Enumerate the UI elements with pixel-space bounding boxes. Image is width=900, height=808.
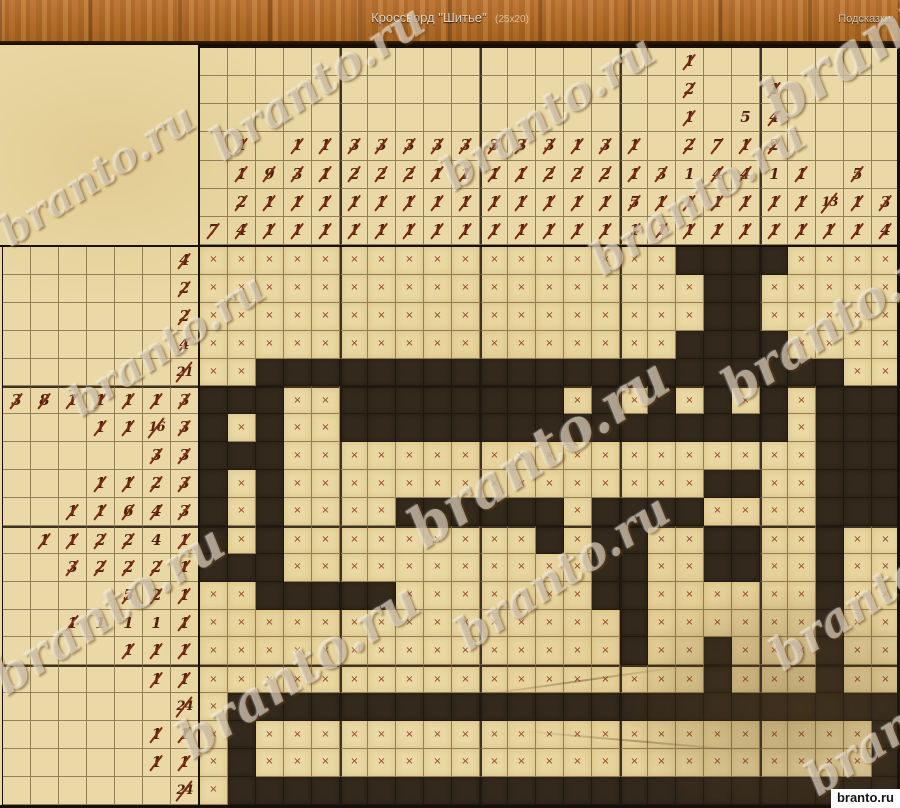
col-clue-cell[interactable]: 1: [844, 189, 872, 217]
grid-cell-filled[interactable]: [648, 498, 676, 526]
grid-cell-empty[interactable]: ×: [676, 610, 704, 638]
grid-cell-empty[interactable]: ×: [396, 749, 424, 777]
grid-cell-empty[interactable]: ×: [312, 610, 340, 638]
row-clue-cell[interactable]: [3, 665, 31, 693]
col-clue-cell[interactable]: [788, 104, 816, 132]
grid-cell-filled[interactable]: [592, 693, 620, 721]
grid-cell-filled[interactable]: [592, 414, 620, 442]
row-clue-cell[interactable]: [115, 275, 143, 303]
grid-cell-empty[interactable]: ×: [284, 610, 312, 638]
grid-cell-filled[interactable]: [816, 526, 844, 554]
grid-cell-filled[interactable]: [732, 303, 760, 331]
col-clue-cell[interactable]: 1: [424, 189, 452, 217]
col-clue-cell[interactable]: 1: [620, 161, 648, 189]
grid-cell-filled[interactable]: [312, 777, 340, 805]
grid-cell-empty[interactable]: ×: [200, 665, 228, 693]
grid-cell-filled[interactable]: [312, 582, 340, 610]
row-clue-cell[interactable]: 1: [59, 386, 87, 414]
grid-cell-empty[interactable]: ×: [480, 247, 508, 275]
grid-cell-filled[interactable]: [312, 693, 340, 721]
grid-cell-empty[interactable]: ×: [564, 637, 592, 665]
grid-cell-empty[interactable]: ×: [872, 637, 900, 665]
col-clue-cell[interactable]: 1: [228, 132, 256, 160]
grid-cell-empty[interactable]: ×: [256, 749, 284, 777]
grid-cell-empty[interactable]: ×: [312, 554, 340, 582]
col-clue-cell[interactable]: 2: [340, 161, 368, 189]
grid-cell-empty[interactable]: ×: [508, 749, 536, 777]
grid-cell-filled[interactable]: [256, 777, 284, 805]
grid-cell-filled[interactable]: [816, 637, 844, 665]
grid-cell-filled[interactable]: [592, 498, 620, 526]
row-clue-cell[interactable]: [3, 582, 31, 610]
grid-cell-filled[interactable]: [704, 386, 732, 414]
row-clue-cell[interactable]: [3, 303, 31, 331]
grid-cell-empty[interactable]: ×: [228, 637, 256, 665]
col-clue-cell[interactable]: [872, 132, 900, 160]
grid-cell-empty[interactable]: ×: [760, 665, 788, 693]
grid-cell-empty[interactable]: ×: [676, 386, 704, 414]
grid-cell-filled[interactable]: [704, 247, 732, 275]
grid-cell-empty[interactable]: ×: [760, 721, 788, 749]
grid-cell-filled[interactable]: [676, 693, 704, 721]
row-clue-cell[interactable]: [59, 749, 87, 777]
grid-cell-empty[interactable]: ×: [340, 721, 368, 749]
row-clue-cell[interactable]: [31, 498, 59, 526]
row-clue-cell[interactable]: [3, 637, 31, 665]
row-clue-cell[interactable]: [59, 777, 87, 805]
grid-cell-filled[interactable]: [592, 359, 620, 387]
col-clue-cell[interactable]: [424, 104, 452, 132]
col-clue-cell[interactable]: 2: [396, 161, 424, 189]
grid-cell-empty[interactable]: ×: [200, 721, 228, 749]
grid-cell-empty[interactable]: ×: [676, 275, 704, 303]
grid-cell-filled[interactable]: [424, 693, 452, 721]
grid-cell-empty[interactable]: ×: [368, 526, 396, 554]
grid-cell-filled[interactable]: [228, 554, 256, 582]
grid-cell-filled[interactable]: [396, 414, 424, 442]
grid-cell-empty[interactable]: ×: [536, 247, 564, 275]
col-clue-cell[interactable]: 1: [760, 161, 788, 189]
grid-cell-empty[interactable]: ×: [200, 275, 228, 303]
row-clue-cell[interactable]: [59, 359, 87, 387]
grid-cell-empty[interactable]: ×: [452, 749, 480, 777]
grid-cell-empty[interactable]: ×: [312, 331, 340, 359]
col-clue-cell[interactable]: 1: [480, 189, 508, 217]
grid-cell-empty[interactable]: ×: [340, 749, 368, 777]
grid-cell-filled[interactable]: [368, 386, 396, 414]
grid-cell-filled[interactable]: [256, 442, 284, 470]
col-clue-cell[interactable]: 1: [396, 189, 424, 217]
grid-cell-empty[interactable]: ×: [452, 637, 480, 665]
col-clue-cell[interactable]: 1: [536, 217, 564, 245]
grid-cell-empty[interactable]: ×: [536, 665, 564, 693]
grid-cell-filled[interactable]: [844, 442, 872, 470]
grid-cell-empty[interactable]: ×: [368, 247, 396, 275]
grid-cell-empty[interactable]: ×: [452, 721, 480, 749]
col-clue-cell[interactable]: [480, 48, 508, 76]
grid-cell-empty[interactable]: ×: [648, 470, 676, 498]
col-clue-cell[interactable]: [816, 161, 844, 189]
grid-cell-empty[interactable]: ×: [872, 582, 900, 610]
grid-cell-filled[interactable]: [732, 554, 760, 582]
grid-cell-filled[interactable]: [788, 359, 816, 387]
col-clue-cell[interactable]: [312, 48, 340, 76]
col-clue-cell[interactable]: [452, 104, 480, 132]
grid-cell-empty[interactable]: ×: [676, 749, 704, 777]
grid-cell-filled[interactable]: [872, 414, 900, 442]
col-clue-cell[interactable]: [200, 48, 228, 76]
grid-cell-filled[interactable]: [396, 498, 424, 526]
grid-cell-empty[interactable]: ×: [340, 610, 368, 638]
grid-cell-filled[interactable]: [368, 693, 396, 721]
row-clue-cell[interactable]: [115, 665, 143, 693]
col-clue-cell[interactable]: 1: [396, 217, 424, 245]
grid-cell-empty[interactable]: ×: [228, 610, 256, 638]
grid-cell-empty[interactable]: ×: [564, 582, 592, 610]
row-clue-cell[interactable]: [3, 247, 31, 275]
grid-cell-filled[interactable]: [340, 693, 368, 721]
grid-cell-empty[interactable]: ×: [844, 749, 872, 777]
grid-cell-empty[interactable]: ×: [368, 303, 396, 331]
col-clue-cell[interactable]: 1: [452, 189, 480, 217]
col-clue-cell[interactable]: 3: [480, 132, 508, 160]
row-clue-cell[interactable]: [3, 470, 31, 498]
grid-cell-empty[interactable]: ×: [424, 665, 452, 693]
grid-cell-empty[interactable]: ×: [592, 442, 620, 470]
grid-cell-empty[interactable]: ×: [424, 275, 452, 303]
col-clue-cell[interactable]: [452, 76, 480, 104]
grid-cell-empty[interactable]: ×: [256, 275, 284, 303]
grid-cell-empty[interactable]: ×: [788, 247, 816, 275]
grid-cell-filled[interactable]: [732, 693, 760, 721]
grid-cell-empty[interactable]: ×: [760, 554, 788, 582]
grid-cell-empty[interactable]: ×: [228, 247, 256, 275]
grid-cell-empty[interactable]: ×: [368, 637, 396, 665]
grid-cell-filled[interactable]: [676, 359, 704, 387]
grid-cell-empty[interactable]: ×: [648, 610, 676, 638]
grid-cell-empty[interactable]: ×: [396, 470, 424, 498]
grid-cell-filled[interactable]: [844, 498, 872, 526]
grid-cell-empty[interactable]: ×: [788, 470, 816, 498]
col-clue-cell[interactable]: [816, 48, 844, 76]
grid-cell-empty[interactable]: ×: [844, 359, 872, 387]
grid-cell-filled[interactable]: [704, 303, 732, 331]
grid-cell-filled[interactable]: [368, 777, 396, 805]
grid-cell-empty[interactable]: ×: [760, 442, 788, 470]
grid-cell-empty[interactable]: ×: [480, 637, 508, 665]
grid-cell-empty[interactable]: ×: [312, 721, 340, 749]
col-clue-cell[interactable]: 3: [508, 132, 536, 160]
row-clue-cell[interactable]: [59, 275, 87, 303]
col-clue-cell[interactable]: [312, 104, 340, 132]
grid-cell-filled[interactable]: [452, 414, 480, 442]
grid-cell-filled[interactable]: [648, 359, 676, 387]
row-clue-cell[interactable]: 16: [143, 414, 171, 442]
row-clue-cell[interactable]: 3: [171, 414, 199, 442]
grid-cell-filled[interactable]: [704, 554, 732, 582]
grid-cell-empty[interactable]: ×: [200, 331, 228, 359]
col-clue-cell[interactable]: 2: [676, 132, 704, 160]
col-clue-cell[interactable]: [648, 48, 676, 76]
grid-cell-filled[interactable]: [816, 414, 844, 442]
col-clue-cell[interactable]: 2: [228, 189, 256, 217]
grid-cell-empty[interactable]: ×: [564, 331, 592, 359]
row-clue-cell[interactable]: [59, 331, 87, 359]
grid-cell-empty[interactable]: ×: [564, 386, 592, 414]
grid-cell-filled[interactable]: [844, 414, 872, 442]
grid-cell-empty[interactable]: ×: [424, 554, 452, 582]
col-clue-cell[interactable]: 1: [312, 189, 340, 217]
row-clue-cell[interactable]: [143, 303, 171, 331]
grid-cell-filled[interactable]: [732, 275, 760, 303]
grid-cell-empty[interactable]: ×: [844, 721, 872, 749]
grid-cell-filled[interactable]: [396, 386, 424, 414]
grid-cell-empty[interactable]: ×: [396, 247, 424, 275]
grid-cell-empty[interactable]: ×: [340, 498, 368, 526]
grid-cell-filled[interactable]: [480, 359, 508, 387]
col-clue-cell[interactable]: [648, 132, 676, 160]
grid-cell-empty[interactable]: ×: [564, 470, 592, 498]
row-clue-cell[interactable]: 2: [115, 554, 143, 582]
col-clue-cell[interactable]: 1: [648, 189, 676, 217]
grid-cell-filled[interactable]: [816, 582, 844, 610]
grid-cell-empty[interactable]: ×: [704, 582, 732, 610]
row-clue-cell[interactable]: [31, 442, 59, 470]
grid-cell-filled[interactable]: [284, 582, 312, 610]
row-clue-cell[interactable]: 3: [3, 386, 31, 414]
row-clue-cell[interactable]: 4: [171, 331, 199, 359]
row-clue-cell[interactable]: 6: [115, 498, 143, 526]
grid-cell-filled[interactable]: [228, 442, 256, 470]
row-clue-cell[interactable]: [143, 275, 171, 303]
grid-cell-empty[interactable]: ×: [592, 637, 620, 665]
grid-cell-filled[interactable]: [396, 777, 424, 805]
grid-cell-empty[interactable]: ×: [620, 442, 648, 470]
col-clue-cell[interactable]: [732, 48, 760, 76]
grid-cell-empty[interactable]: ×: [648, 275, 676, 303]
grid-cell-filled[interactable]: [620, 637, 648, 665]
col-clue-cell[interactable]: 1: [816, 217, 844, 245]
grid-cell-empty[interactable]: ×: [536, 470, 564, 498]
grid-cell-empty[interactable]: ×: [564, 554, 592, 582]
grid-cell-filled[interactable]: [592, 582, 620, 610]
grid-cell-empty[interactable]: ×: [284, 498, 312, 526]
grid-cell-empty[interactable]: ×: [452, 331, 480, 359]
grid-cell-empty[interactable]: ×: [368, 610, 396, 638]
grid-cell-empty[interactable]: ×: [732, 582, 760, 610]
grid-cell-empty[interactable]: ×: [368, 275, 396, 303]
grid-cell-filled[interactable]: [536, 414, 564, 442]
row-clue-cell[interactable]: [115, 303, 143, 331]
grid-cell-empty[interactable]: ×: [788, 582, 816, 610]
row-clue-cell[interactable]: 2: [115, 526, 143, 554]
row-clue-cell[interactable]: 1: [171, 582, 199, 610]
grid-cell-empty[interactable]: ×: [396, 637, 424, 665]
grid-cell-filled[interactable]: [228, 721, 256, 749]
grid-cell-filled[interactable]: [452, 359, 480, 387]
grid-cell-filled[interactable]: [844, 386, 872, 414]
row-clue-cell[interactable]: [87, 637, 115, 665]
grid-cell-empty[interactable]: ×: [760, 610, 788, 638]
grid-cell-filled[interactable]: [732, 414, 760, 442]
grid-cell-empty[interactable]: ×: [284, 386, 312, 414]
row-clue-cell[interactable]: 1: [143, 386, 171, 414]
row-clue-cell[interactable]: [31, 470, 59, 498]
grid-cell-filled[interactable]: [508, 386, 536, 414]
col-clue-cell[interactable]: [788, 132, 816, 160]
row-clue-cell[interactable]: 4: [171, 247, 199, 275]
col-clue-cell[interactable]: [844, 48, 872, 76]
grid-cell-filled[interactable]: [200, 442, 228, 470]
grid-cell-empty[interactable]: ×: [816, 721, 844, 749]
col-clue-cell[interactable]: 2: [760, 132, 788, 160]
row-clue-cell[interactable]: 24: [171, 693, 199, 721]
grid-cell-filled[interactable]: [648, 693, 676, 721]
row-clue-cell[interactable]: [143, 777, 171, 805]
grid-cell-filled[interactable]: [872, 386, 900, 414]
grid-cell-empty[interactable]: ×: [760, 749, 788, 777]
grid-cell-filled[interactable]: [508, 414, 536, 442]
row-clue-cell[interactable]: [3, 359, 31, 387]
grid-cell-empty[interactable]: ×: [592, 470, 620, 498]
row-clue-cell[interactable]: [87, 247, 115, 275]
grid-cell-empty[interactable]: ×: [396, 442, 424, 470]
col-clue-cell[interactable]: 1: [368, 217, 396, 245]
row-clue-cell[interactable]: 2: [143, 582, 171, 610]
grid-cell-empty[interactable]: ×: [648, 247, 676, 275]
row-clue-cell[interactable]: 1: [115, 414, 143, 442]
col-clue-cell[interactable]: 1: [620, 132, 648, 160]
col-clue-cell[interactable]: 1: [732, 217, 760, 245]
grid-cell-filled[interactable]: [704, 275, 732, 303]
col-clue-cell[interactable]: [424, 48, 452, 76]
grid-cell-empty[interactable]: ×: [228, 414, 256, 442]
col-clue-cell[interactable]: [564, 48, 592, 76]
grid-cell-filled[interactable]: [256, 554, 284, 582]
col-clue-cell[interactable]: 1: [676, 104, 704, 132]
grid-cell-empty[interactable]: ×: [480, 554, 508, 582]
grid-cell-filled[interactable]: [284, 693, 312, 721]
grid-cell-empty[interactable]: ×: [620, 665, 648, 693]
row-clue-cell[interactable]: [31, 777, 59, 805]
grid-cell-empty[interactable]: ×: [480, 665, 508, 693]
grid-cell-empty[interactable]: ×: [872, 331, 900, 359]
grid-cell-empty[interactable]: ×: [312, 749, 340, 777]
grid-cell-empty[interactable]: ×: [396, 275, 424, 303]
row-clue-cell[interactable]: [115, 749, 143, 777]
grid-cell-empty[interactable]: ×: [284, 470, 312, 498]
grid-cell-filled[interactable]: [256, 359, 284, 387]
grid-cell-filled[interactable]: [788, 693, 816, 721]
row-clue-cell[interactable]: 2: [87, 554, 115, 582]
grid-cell-empty[interactable]: ×: [228, 665, 256, 693]
col-clue-cell[interactable]: [200, 104, 228, 132]
grid-cell-empty[interactable]: ×: [676, 721, 704, 749]
grid-cell-empty[interactable]: ×: [312, 526, 340, 554]
grid-cell-empty[interactable]: ×: [508, 554, 536, 582]
grid-cell-empty[interactable]: ×: [228, 582, 256, 610]
grid-cell-filled[interactable]: [452, 777, 480, 805]
col-clue-cell[interactable]: [704, 48, 732, 76]
grid-cell-filled[interactable]: [228, 749, 256, 777]
grid-cell-empty[interactable]: ×: [424, 582, 452, 610]
col-clue-cell[interactable]: [256, 132, 284, 160]
grid-cell-empty[interactable]: ×: [200, 303, 228, 331]
grid-cell-empty[interactable]: ×: [256, 331, 284, 359]
row-clue-cell[interactable]: 2: [143, 470, 171, 498]
col-clue-cell[interactable]: [816, 132, 844, 160]
grid-cell-filled[interactable]: [480, 386, 508, 414]
grid-cell-filled[interactable]: [284, 359, 312, 387]
col-clue-cell[interactable]: [872, 76, 900, 104]
grid-cell-empty[interactable]: ×: [592, 665, 620, 693]
grid-cell-empty[interactable]: ×: [312, 247, 340, 275]
grid-cell-filled[interactable]: [760, 693, 788, 721]
grid-cell-filled[interactable]: [228, 693, 256, 721]
grid-cell-empty[interactable]: ×: [592, 303, 620, 331]
grid-cell-filled[interactable]: [536, 526, 564, 554]
grid-cell-filled[interactable]: [872, 470, 900, 498]
row-clue-cell[interactable]: [143, 331, 171, 359]
grid-cell-empty[interactable]: ×: [508, 275, 536, 303]
grid-cell-empty[interactable]: ×: [396, 303, 424, 331]
grid-cell-filled[interactable]: [816, 498, 844, 526]
row-clue-cell[interactable]: [143, 693, 171, 721]
col-clue-cell[interactable]: [368, 104, 396, 132]
grid-cell-filled[interactable]: [508, 777, 536, 805]
grid-cell-empty[interactable]: ×: [396, 331, 424, 359]
grid-cell-empty[interactable]: ×: [760, 637, 788, 665]
grid-cell-empty[interactable]: ×: [844, 610, 872, 638]
grid-cell-empty[interactable]: ×: [564, 610, 592, 638]
grid-cell-empty[interactable]: ×: [396, 554, 424, 582]
grid-cell-empty[interactable]: ×: [648, 665, 676, 693]
grid-cell-empty[interactable]: ×: [424, 637, 452, 665]
grid-cell-filled[interactable]: [480, 693, 508, 721]
row-clue-cell[interactable]: [143, 359, 171, 387]
col-clue-cell[interactable]: 4: [228, 217, 256, 245]
grid-cell-filled[interactable]: [816, 386, 844, 414]
grid-cell-empty[interactable]: ×: [452, 275, 480, 303]
grid-cell-empty[interactable]: ×: [508, 247, 536, 275]
grid-cell-empty[interactable]: ×: [648, 442, 676, 470]
col-clue-cell[interactable]: 1: [340, 189, 368, 217]
col-clue-cell[interactable]: 1: [424, 161, 452, 189]
grid-cell-empty[interactable]: ×: [564, 721, 592, 749]
col-clue-cell[interactable]: 2: [368, 161, 396, 189]
grid-cell-empty[interactable]: ×: [564, 275, 592, 303]
col-clue-cell[interactable]: 1: [676, 217, 704, 245]
grid-cell-empty[interactable]: ×: [732, 749, 760, 777]
row-clue-cell[interactable]: [31, 665, 59, 693]
col-clue-cell[interactable]: 1: [788, 161, 816, 189]
col-clue-cell[interactable]: [424, 76, 452, 104]
row-clue-cell[interactable]: [59, 470, 87, 498]
grid-cell-empty[interactable]: ×: [368, 749, 396, 777]
row-clue-cell[interactable]: [115, 693, 143, 721]
col-clue-cell[interactable]: [508, 104, 536, 132]
grid-cell-empty[interactable]: ×: [536, 554, 564, 582]
row-clue-cell[interactable]: [3, 275, 31, 303]
row-clue-cell[interactable]: [3, 331, 31, 359]
grid-cell-empty[interactable]: ×: [368, 331, 396, 359]
row-clue-cell[interactable]: 1: [143, 721, 171, 749]
row-clue-cell[interactable]: [87, 331, 115, 359]
grid-cell-filled[interactable]: [872, 721, 900, 749]
col-clue-cell[interactable]: 1: [284, 189, 312, 217]
row-clue-cell[interactable]: 2: [171, 275, 199, 303]
row-clue-cell[interactable]: 1: [31, 526, 59, 554]
